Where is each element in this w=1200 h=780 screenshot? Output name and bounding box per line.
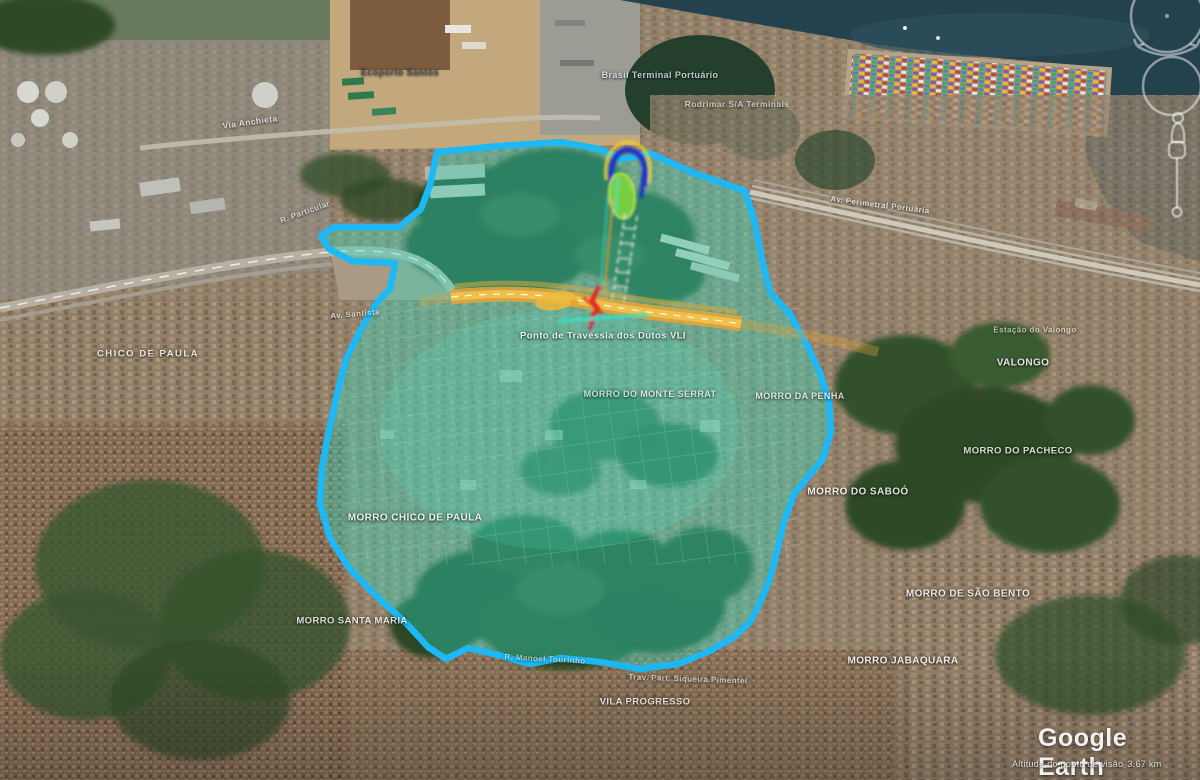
google-earth-watermark: Google Earth <box>1038 724 1200 780</box>
map-canvas[interactable] <box>0 0 1200 780</box>
google-earth-window: Ecoporto SantosBrasil Terminal Portuário… <box>0 0 1200 780</box>
eye-altitude-status: Altitude do ponto de visão3.67 km <box>1012 759 1166 769</box>
eye-altitude-value: 3.67 km <box>1127 759 1161 769</box>
eye-altitude-label: Altitude do ponto de visão <box>1012 759 1123 769</box>
